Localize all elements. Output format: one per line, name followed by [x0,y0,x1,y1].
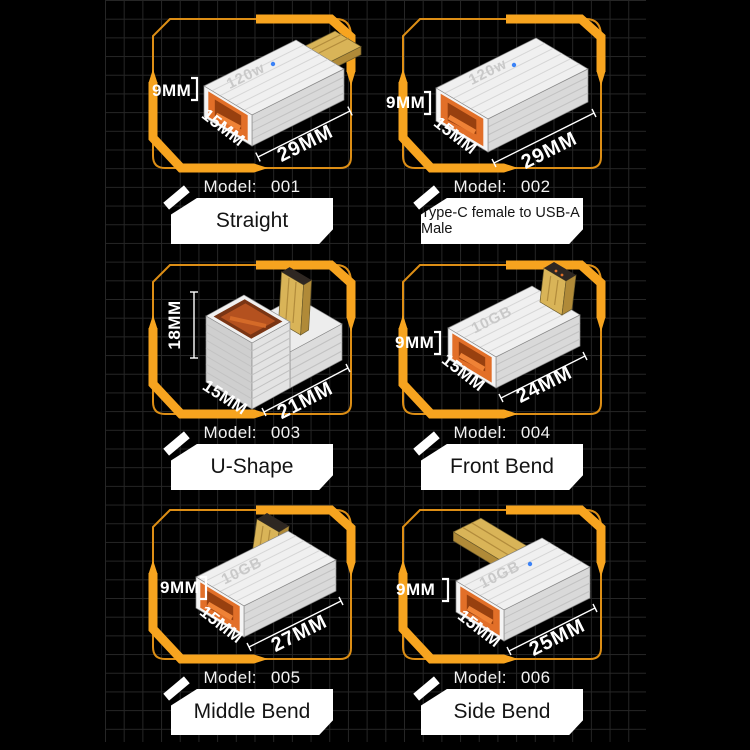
dim-length-label: 29MM [518,127,581,173]
model-label: Model: [453,177,506,197]
product-cell-005: 10GB 9MM 15MM 27MM Model: 005 Middle Ben… [140,507,364,739]
model-value: 002 [521,177,551,197]
shape-label: Middle Bend [194,700,311,724]
shape-label-box: U-Shape [171,444,333,490]
dim-height-bracket [191,78,197,100]
shape-label: U-Shape [211,455,294,479]
model-label: Model: [203,668,256,688]
led-dot [528,562,532,566]
shape-label: Side Bend [454,700,551,724]
model-label: Model: [203,423,256,443]
dim-height-label: 9MM [395,333,434,352]
dim-height-label: 9MM [386,93,425,112]
product-cell-003: 18MM 15MM 21MM Model: 003 U-Shape [140,262,364,494]
adapter-illustration-side-bend: 10GB 9MM 15MM 25MM [390,507,614,667]
led-dot [271,62,275,66]
adapter-illustration-front-bend: 10GB 9MM 15MM 24MM [390,262,614,422]
dim-height-label: 18MM [165,300,184,349]
dim-height-bracket [434,332,440,354]
model-value: 005 [271,668,301,688]
shape-label-box: Type-C female to USB-A Male [421,198,583,244]
adapter-illustration-coupler: 120w 9MM 15MM 29MM [390,16,614,176]
model-label: Model: [203,177,256,197]
dim-height-label: 9MM [396,580,435,599]
shape-label-box: Straight [171,198,333,244]
shape-label: Type-C female to USB-A Male [421,205,583,237]
model-value: 003 [271,423,301,443]
model-value: 004 [521,423,551,443]
product-cell-004: 10GB 9MM 15MM 24MM [390,262,614,494]
adapter-illustration-straight: 120w 9MM 15MM 29MM [140,16,364,176]
shape-label: Front Bend [450,455,554,479]
shape-label: Straight [216,209,288,233]
model-value: 001 [271,177,301,197]
model-label: Model: [453,668,506,688]
model-value: 006 [521,668,551,688]
dim-height-label: 9MM [152,81,191,100]
adapter-illustration-u-shape: 18MM 15MM 21MM [140,262,364,422]
product-cell-001: 120w 9MM 15MM 29MM Model: 001 Stra [140,16,364,248]
led-dot [512,63,516,67]
dim-height-label: 9MM [160,578,199,597]
model-label: Model: [453,423,506,443]
product-cell-006: 10GB 9MM 15MM 25MM Model: 006 Side [390,507,614,739]
shape-label-box: Front Bend [421,444,583,490]
dim-height-bracket [442,579,448,601]
adapter-illustration-middle-bend: 10GB 9MM 15MM 27MM [140,507,364,667]
product-cell-002: 120w 9MM 15MM 29MM Model: 002 Type [390,16,614,248]
shape-label-box: Middle Bend [171,689,333,735]
shape-label-box: Side Bend [421,689,583,735]
